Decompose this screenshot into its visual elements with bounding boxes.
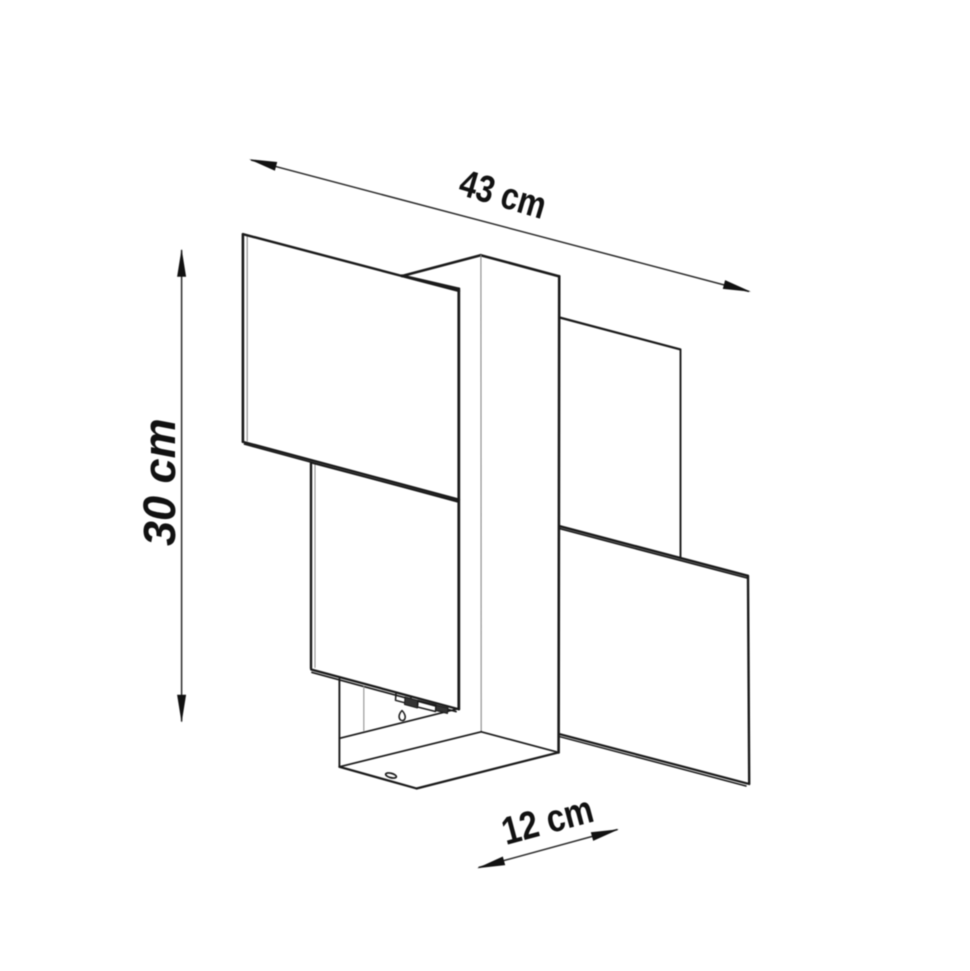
svg-text:30 cm: 30 cm xyxy=(134,418,185,546)
